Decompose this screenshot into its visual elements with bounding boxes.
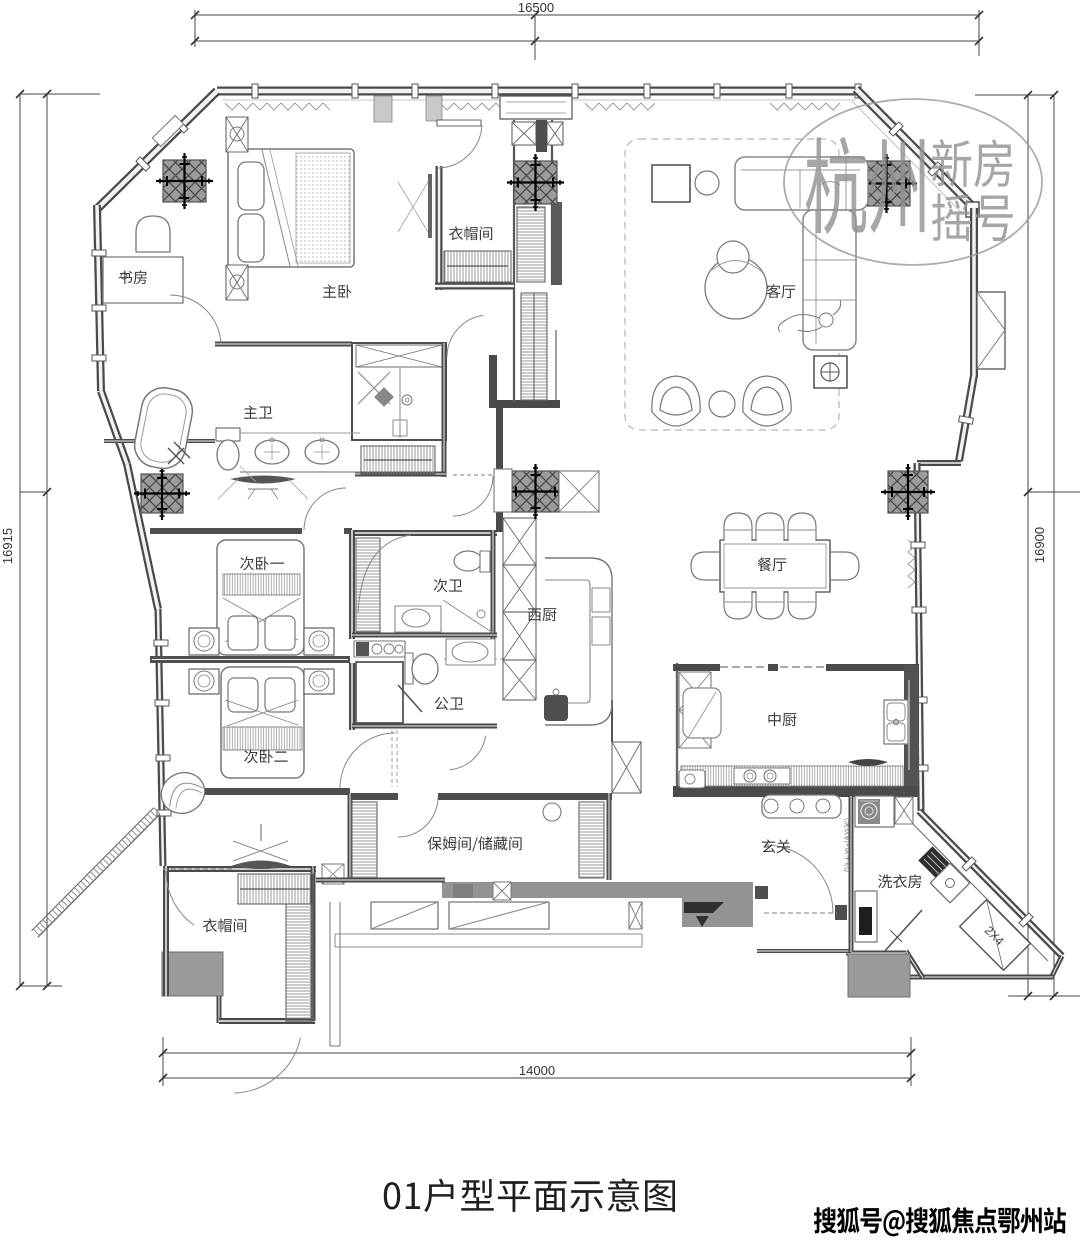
svg-text:16915: 16915 bbox=[0, 528, 15, 564]
svg-text:16900: 16900 bbox=[1032, 527, 1047, 563]
svg-text:14000: 14000 bbox=[519, 1063, 555, 1078]
svg-text:16500: 16500 bbox=[518, 0, 554, 15]
